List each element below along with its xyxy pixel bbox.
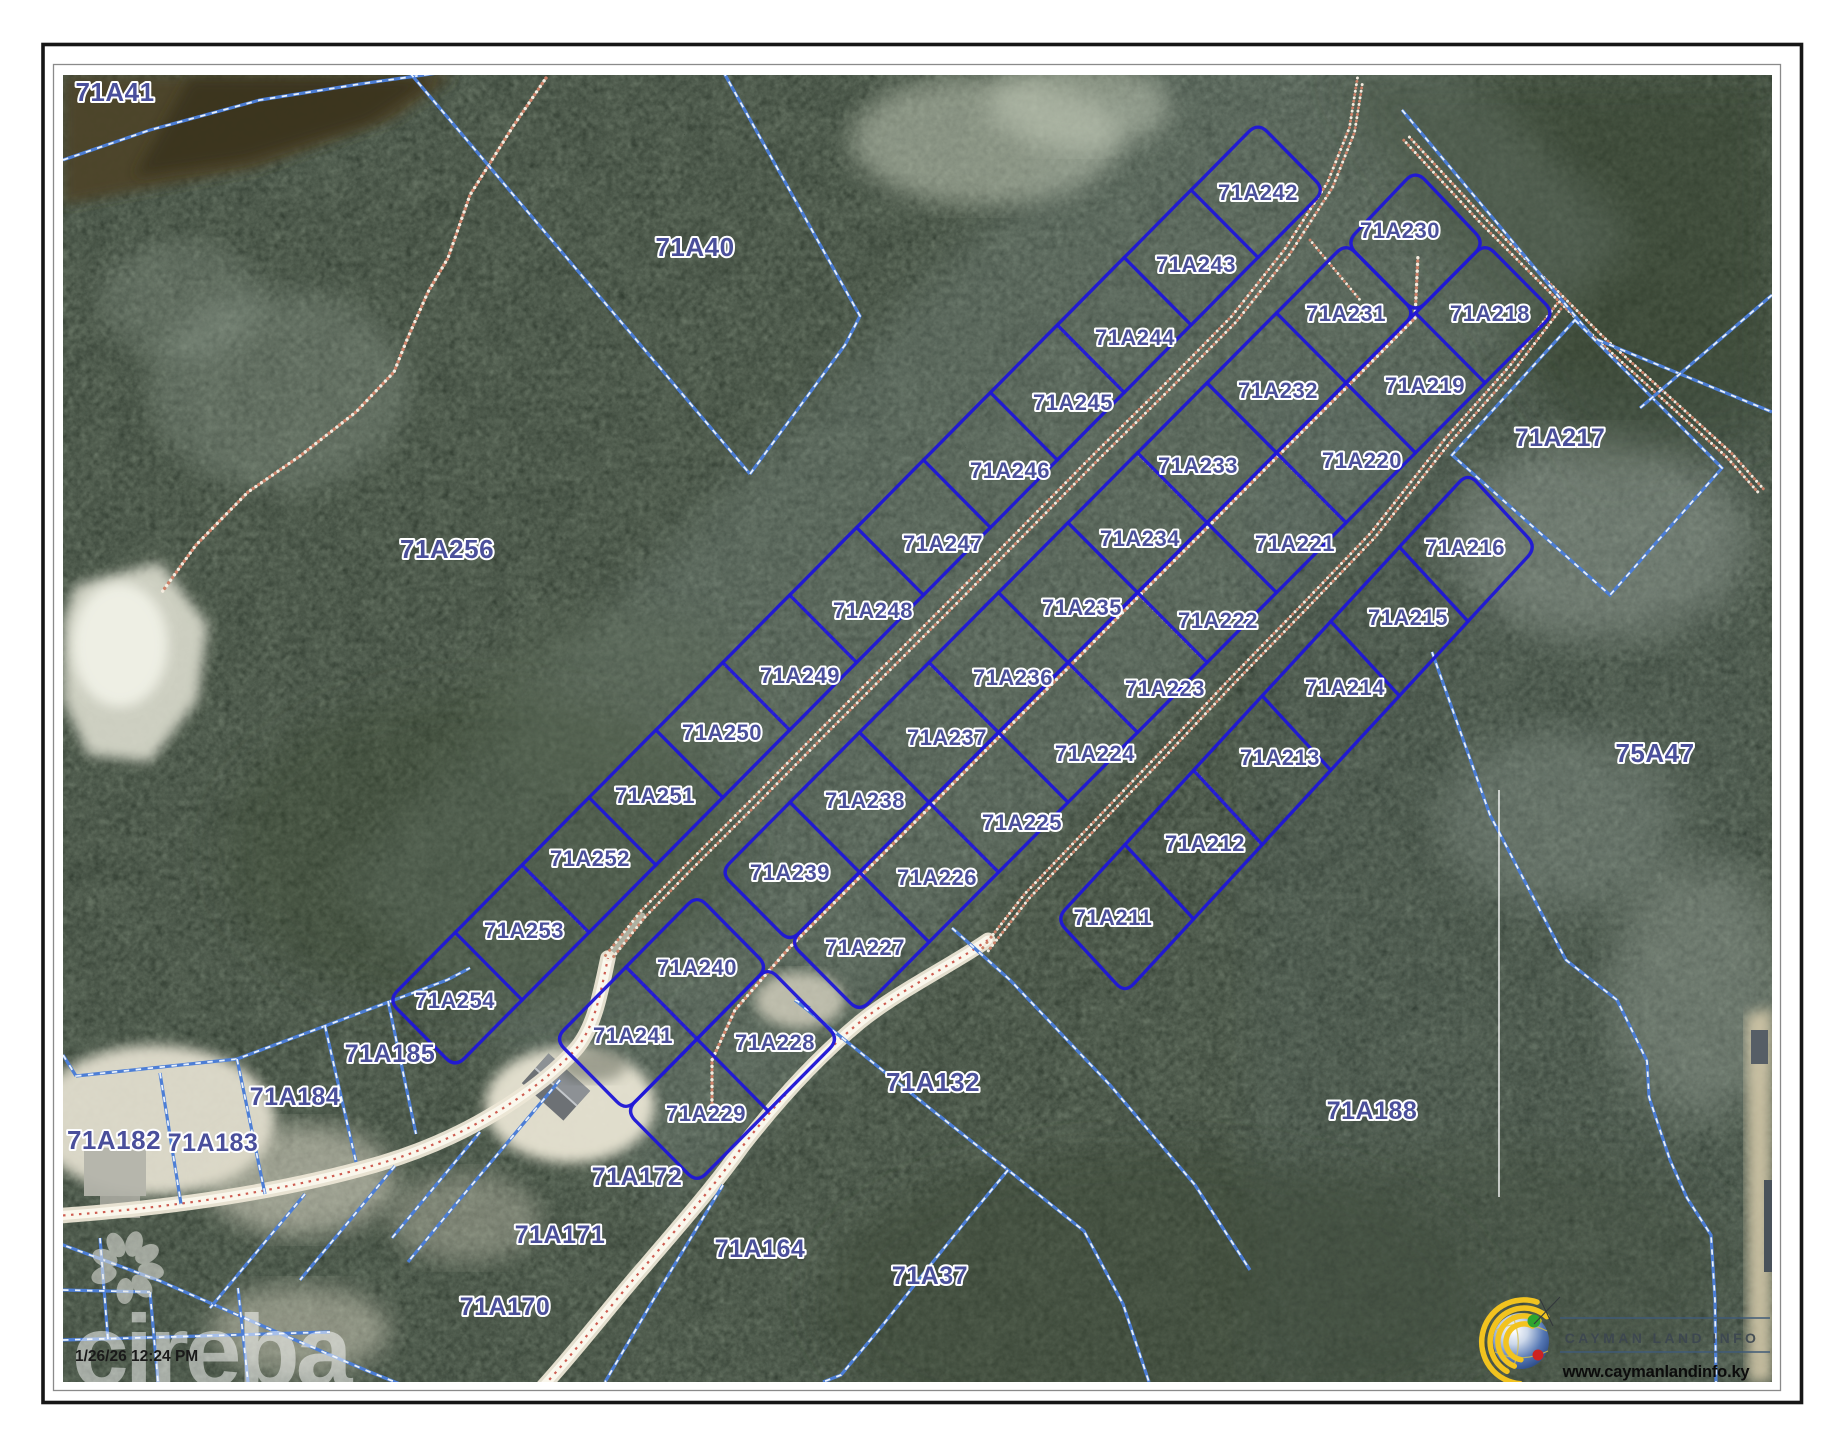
svg-text:71A220: 71A220 bbox=[1322, 448, 1402, 473]
svg-text:71A245: 71A245 bbox=[1033, 390, 1113, 415]
svg-text:71A223: 71A223 bbox=[1125, 676, 1205, 701]
svg-text:71A218: 71A218 bbox=[1450, 301, 1530, 326]
svg-text:71A230: 71A230 bbox=[1360, 218, 1440, 243]
svg-text:71A241: 71A241 bbox=[593, 1023, 673, 1048]
svg-text:71A217: 71A217 bbox=[1515, 424, 1606, 452]
svg-text:71A248: 71A248 bbox=[833, 598, 913, 623]
svg-text:71A253: 71A253 bbox=[484, 918, 564, 943]
svg-text:71A250: 71A250 bbox=[682, 720, 762, 745]
svg-text:71A164: 71A164 bbox=[715, 1235, 806, 1263]
svg-text:71A256: 71A256 bbox=[400, 534, 494, 564]
svg-text:71A221: 71A221 bbox=[1255, 531, 1335, 556]
svg-text:71A172: 71A172 bbox=[592, 1163, 683, 1191]
svg-text:71A237: 71A237 bbox=[907, 725, 987, 750]
svg-text:71A188: 71A188 bbox=[1327, 1097, 1418, 1125]
svg-text:71A41: 71A41 bbox=[75, 77, 154, 107]
svg-text:71A239: 71A239 bbox=[750, 860, 830, 885]
svg-text:71A37: 71A37 bbox=[892, 1262, 968, 1290]
svg-text:71A226: 71A226 bbox=[897, 865, 977, 890]
svg-text:71A40: 71A40 bbox=[655, 232, 734, 262]
svg-text:71A235: 71A235 bbox=[1042, 595, 1122, 620]
svg-text:71A254: 71A254 bbox=[415, 988, 495, 1013]
svg-text:www.caymanlandinfo.ky: www.caymanlandinfo.ky bbox=[1562, 1363, 1751, 1381]
svg-text:71A229: 71A229 bbox=[666, 1101, 746, 1126]
svg-text:71A247: 71A247 bbox=[903, 531, 983, 556]
svg-text:71A132: 71A132 bbox=[886, 1067, 980, 1097]
svg-text:71A216: 71A216 bbox=[1425, 535, 1505, 560]
svg-text:71A211: 71A211 bbox=[1074, 905, 1153, 930]
svg-text:71A249: 71A249 bbox=[760, 663, 840, 688]
svg-text:71A215: 71A215 bbox=[1368, 605, 1448, 630]
svg-text:71A238: 71A238 bbox=[825, 788, 905, 813]
svg-text:71A214: 71A214 bbox=[1305, 675, 1385, 700]
svg-text:71A246: 71A246 bbox=[970, 458, 1050, 483]
svg-text:71A242: 71A242 bbox=[1218, 180, 1298, 205]
svg-text:75A47: 75A47 bbox=[1615, 738, 1694, 768]
svg-text:71A219: 71A219 bbox=[1385, 373, 1465, 398]
svg-text:71A228: 71A228 bbox=[735, 1030, 815, 1055]
svg-text:71A234: 71A234 bbox=[1100, 526, 1180, 551]
svg-text:CAYMAN LAND INFO: CAYMAN LAND INFO bbox=[1565, 1330, 1760, 1346]
svg-text:71A184: 71A184 bbox=[250, 1083, 341, 1111]
svg-text:71A224: 71A224 bbox=[1055, 741, 1135, 766]
svg-text:71A182: 71A182 bbox=[67, 1125, 161, 1155]
svg-text:71A213: 71A213 bbox=[1240, 745, 1320, 770]
svg-text:71A252: 71A252 bbox=[550, 846, 630, 871]
svg-text:71A185: 71A185 bbox=[345, 1040, 436, 1068]
svg-text:71A227: 71A227 bbox=[825, 935, 905, 960]
svg-text:71A222: 71A222 bbox=[1178, 608, 1258, 633]
svg-text:71A171: 71A171 bbox=[515, 1221, 606, 1249]
svg-text:71A240: 71A240 bbox=[657, 955, 737, 980]
svg-text:71A233: 71A233 bbox=[1158, 453, 1238, 478]
svg-text:71A212: 71A212 bbox=[1165, 831, 1245, 856]
svg-text:71A236: 71A236 bbox=[973, 665, 1053, 690]
svg-text:71A243: 71A243 bbox=[1156, 252, 1236, 277]
svg-text:71A170: 71A170 bbox=[460, 1293, 551, 1321]
svg-text:71A232: 71A232 bbox=[1238, 378, 1318, 403]
svg-text:71A225: 71A225 bbox=[982, 810, 1062, 835]
svg-text:71A183: 71A183 bbox=[168, 1129, 259, 1157]
svg-text:1/26/26 12:24 PM: 1/26/26 12:24 PM bbox=[75, 1348, 198, 1365]
svg-text:71A251: 71A251 bbox=[615, 783, 695, 808]
svg-text:71A244: 71A244 bbox=[1095, 325, 1175, 350]
svg-text:71A231: 71A231 bbox=[1306, 301, 1386, 326]
